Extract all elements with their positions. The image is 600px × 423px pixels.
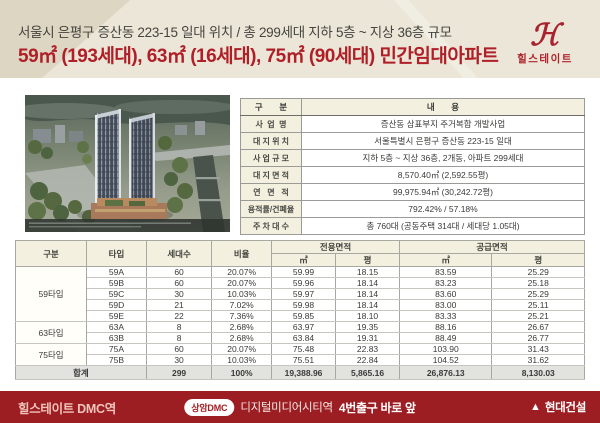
unit-header-pyeong-supply: 평 — [492, 254, 585, 267]
unit-cell: 83.60 — [400, 289, 492, 300]
unit-cell: 25.18 — [492, 278, 585, 289]
unit-cell: 75.48 — [272, 344, 336, 355]
unit-cell: 60 — [146, 278, 211, 289]
podium-base — [91, 198, 167, 219]
station-name: 디지털미디어시티역 — [240, 399, 333, 415]
unit-cell: 25.11 — [492, 300, 585, 311]
unit-cell: 63.84 — [272, 333, 336, 344]
unit-cell: 7.36% — [212, 311, 272, 322]
unit-row: 63B82.68%63.8419.3188.4926.77 — [16, 333, 585, 344]
unit-cell: 20.07% — [212, 267, 272, 278]
unit-cell: 104.52 — [400, 355, 492, 366]
info-row: 대 지 면 적8,570.40㎡ (2,592.55평) — [241, 167, 585, 184]
info-row: 사 업 명증산동 삼표부지 주거복합 개발사업 — [241, 116, 585, 133]
unit-cell: 26.67 — [492, 322, 585, 333]
unit-cell: 59.97 — [272, 289, 336, 300]
unit-cell: 2.68% — [212, 333, 272, 344]
info-label: 사 업 명 — [241, 116, 302, 133]
unit-cell: 83.33 — [400, 311, 492, 322]
info-label: 연 면 적 — [241, 184, 302, 201]
unit-cell: 59A — [87, 267, 147, 278]
unit-cell: 20.07% — [212, 344, 272, 355]
unit-cell: 25.29 — [492, 267, 585, 278]
info-label: 사 업 규 모 — [241, 150, 302, 167]
info-value: 총 760대 (공동주택 314대 / 세대당 1.05대) — [302, 218, 585, 235]
unit-row: 75타입75A6020.07%75.4822.83103.9031.43 — [16, 344, 585, 355]
unit-header-sqm-exclusive: ㎡ — [272, 254, 336, 267]
unit-total-row: 합계299100%19,388.965,865.1626,876.138,130… — [16, 366, 585, 380]
hillstate-logo-name: 힐스테이트 — [502, 51, 588, 66]
unit-header-sqm-supply: ㎡ — [400, 254, 492, 267]
unit-cell: 75A — [87, 344, 147, 355]
unit-cell: 22.84 — [336, 355, 400, 366]
info-label: 대 지 위 치 — [241, 133, 302, 150]
unit-header-row-1: 구분 타입 세대수 비율 전용면적 공급면적 — [16, 241, 585, 254]
station-info: 상암DMC 디지털미디어시티역 4번출구 바로 앞 — [184, 399, 415, 416]
hillstate-monogram-icon: ℋ — [502, 22, 588, 50]
info-row: 주 차 대 수총 760대 (공동주택 314대 / 세대당 1.05대) — [241, 218, 585, 235]
hillstate-logo: ℋ 힐스테이트 — [502, 22, 588, 66]
total-cell: 8,130.03 — [492, 366, 585, 380]
unit-cell: 88.49 — [400, 333, 492, 344]
builder-logo: ▲ 현대건설 — [530, 399, 586, 415]
unit-cell: 30 — [146, 289, 211, 300]
info-value: 99,975.94㎡ (30,242.72평) — [302, 184, 585, 201]
unit-row: 59타입59A6020.07%59.9918.1583.5925.29 — [16, 267, 585, 278]
unit-cell: 63.97 — [272, 322, 336, 333]
total-label: 합계 — [16, 366, 147, 380]
unit-header-group: 구분 — [16, 241, 87, 267]
unit-cell: 25.29 — [492, 289, 585, 300]
unit-mix-headline: 59㎡ (193세대), 63㎡ (16세대), 75㎡ (90세대) 민간임대… — [18, 41, 498, 68]
unit-row: 59D217.02%59.9818.1483.0025.11 — [16, 300, 585, 311]
unit-row: 59B6020.07%59.9618.1483.2325.18 — [16, 278, 585, 289]
info-row: 대 지 위 치서울특별시 은평구 증산동 223-15 일대 — [241, 133, 585, 150]
unit-cell: 88.16 — [400, 322, 492, 333]
info-row: 연 면 적99,975.94㎡ (30,242.72평) — [241, 184, 585, 201]
unit-mix-table: 구분 타입 세대수 비율 전용면적 공급면적 ㎡ 평 ㎡ 평 59타입59A60… — [15, 240, 585, 380]
station-exit-highlight: 4번출구 바로 앞 — [339, 399, 416, 416]
unit-cell: 59.98 — [272, 300, 336, 311]
unit-cell: 59B — [87, 278, 147, 289]
info-row: 사 업 규 모지하 5층 ~ 지상 36층, 2개동, 아파트 299세대 — [241, 150, 585, 167]
unit-header-pyeong-exclusive: 평 — [336, 254, 400, 267]
building-rendering-image — [25, 95, 230, 232]
location-summary: 서울시 은평구 증산동 223-15 일대 위치 / 총 299세대 지하 5층… — [18, 21, 452, 41]
footer-bar: 힐스테이트 DMC역 상암DMC 디지털미디어시티역 4번출구 바로 앞 ▲ 현… — [0, 391, 600, 423]
unit-group-label: 59타입 — [16, 267, 87, 322]
unit-header-ratio: 비율 — [212, 241, 272, 267]
unit-cell: 7.02% — [212, 300, 272, 311]
unit-cell: 31.62 — [492, 355, 585, 366]
info-value: 서울특별시 은평구 증산동 223-15 일대 — [302, 133, 585, 150]
info-header-naeyong: 내 용 — [302, 99, 585, 116]
total-cell: 299 — [146, 366, 211, 380]
project-name: 힐스테이트 DMC역 — [18, 398, 116, 417]
info-value: 792.42% / 57.18% — [302, 201, 585, 218]
unit-cell: 8 — [146, 333, 211, 344]
unit-cell: 25.21 — [492, 311, 585, 322]
unit-row: 75B3010.03%75.5122.84104.5231.62 — [16, 355, 585, 366]
unit-row: 59C3010.03%59.9718.1483.6025.29 — [16, 289, 585, 300]
info-row: 용적률/건폐율792.42% / 57.18% — [241, 201, 585, 218]
unit-cell: 83.00 — [400, 300, 492, 311]
unit-cell: 19.35 — [336, 322, 400, 333]
unit-cell: 75B — [87, 355, 147, 366]
unit-cell: 63A — [87, 322, 147, 333]
unit-header-type: 타입 — [87, 241, 147, 267]
header-band: 서울시 은평구 증산동 223-15 일대 위치 / 총 299세대 지하 5층… — [0, 0, 600, 78]
unit-cell: 59.96 — [272, 278, 336, 289]
unit-cell: 18.10 — [336, 311, 400, 322]
unit-cell: 26.77 — [492, 333, 585, 344]
builder-name: 현대건설 — [545, 399, 586, 415]
unit-cell: 10.03% — [212, 355, 272, 366]
unit-cell: 103.90 — [400, 344, 492, 355]
info-label: 대 지 면 적 — [241, 167, 302, 184]
info-header-row: 구 분 내 용 — [241, 99, 585, 116]
unit-cell: 83.59 — [400, 267, 492, 278]
unit-cell: 59E — [87, 311, 147, 322]
unit-cell: 8 — [146, 322, 211, 333]
unit-cell: 22 — [146, 311, 211, 322]
total-cell: 5,865.16 — [336, 366, 400, 380]
info-label: 주 차 대 수 — [241, 218, 302, 235]
unit-cell: 18.14 — [336, 278, 400, 289]
unit-cell: 59.99 — [272, 267, 336, 278]
flyer-page: 서울시 은평구 증산동 223-15 일대 위치 / 총 299세대 지하 5층… — [0, 0, 600, 423]
info-label: 용적률/건폐율 — [241, 201, 302, 218]
unit-cell: 10.03% — [212, 289, 272, 300]
info-header-gubun: 구 분 — [241, 99, 302, 116]
unit-cell: 60 — [146, 267, 211, 278]
unit-cell: 20.07% — [212, 278, 272, 289]
info-value: 8,570.40㎡ (2,592.55평) — [302, 167, 585, 184]
unit-cell: 31.43 — [492, 344, 585, 355]
unit-cell: 63B — [87, 333, 147, 344]
total-cell: 26,876.13 — [400, 366, 492, 380]
total-cell: 19,388.96 — [272, 366, 336, 380]
unit-row: 63타입63A82.68%63.9719.3588.1626.67 — [16, 322, 585, 333]
project-info-table: 구 분 내 용 사 업 명증산동 삼표부지 주거복합 개발사업대 지 위 치서울… — [240, 98, 585, 235]
unit-cell: 18.15 — [336, 267, 400, 278]
unit-cell: 2.68% — [212, 322, 272, 333]
unit-cell: 21 — [146, 300, 211, 311]
unit-header-households: 세대수 — [146, 241, 211, 267]
unit-row: 59E227.36%59.8518.1083.3325.21 — [16, 311, 585, 322]
info-value: 지하 5층 ~ 지상 36층, 2개동, 아파트 299세대 — [302, 150, 585, 167]
image-disclaimer-strip — [25, 219, 230, 232]
unit-cell: 75.51 — [272, 355, 336, 366]
unit-cell: 83.23 — [400, 278, 492, 289]
unit-header-exclusive-area: 전용면적 — [272, 241, 400, 254]
info-value: 증산동 삼표부지 주거복합 개발사업 — [302, 116, 585, 133]
hyundai-triangle-icon: ▲ — [530, 402, 541, 413]
unit-cell: 18.14 — [336, 300, 400, 311]
unit-group-label: 75타입 — [16, 344, 87, 366]
unit-cell: 18.14 — [336, 289, 400, 300]
unit-cell: 59.85 — [272, 311, 336, 322]
building-rendering — [25, 95, 230, 232]
unit-cell: 59D — [87, 300, 147, 311]
unit-cell: 59C — [87, 289, 147, 300]
unit-cell: 30 — [146, 355, 211, 366]
total-cell: 100% — [212, 366, 272, 380]
station-badge: 상암DMC — [184, 399, 234, 416]
unit-cell: 19.31 — [336, 333, 400, 344]
unit-group-label: 63타입 — [16, 322, 87, 344]
unit-cell: 60 — [146, 344, 211, 355]
unit-cell: 22.83 — [336, 344, 400, 355]
unit-header-supply-area: 공급면적 — [400, 241, 585, 254]
